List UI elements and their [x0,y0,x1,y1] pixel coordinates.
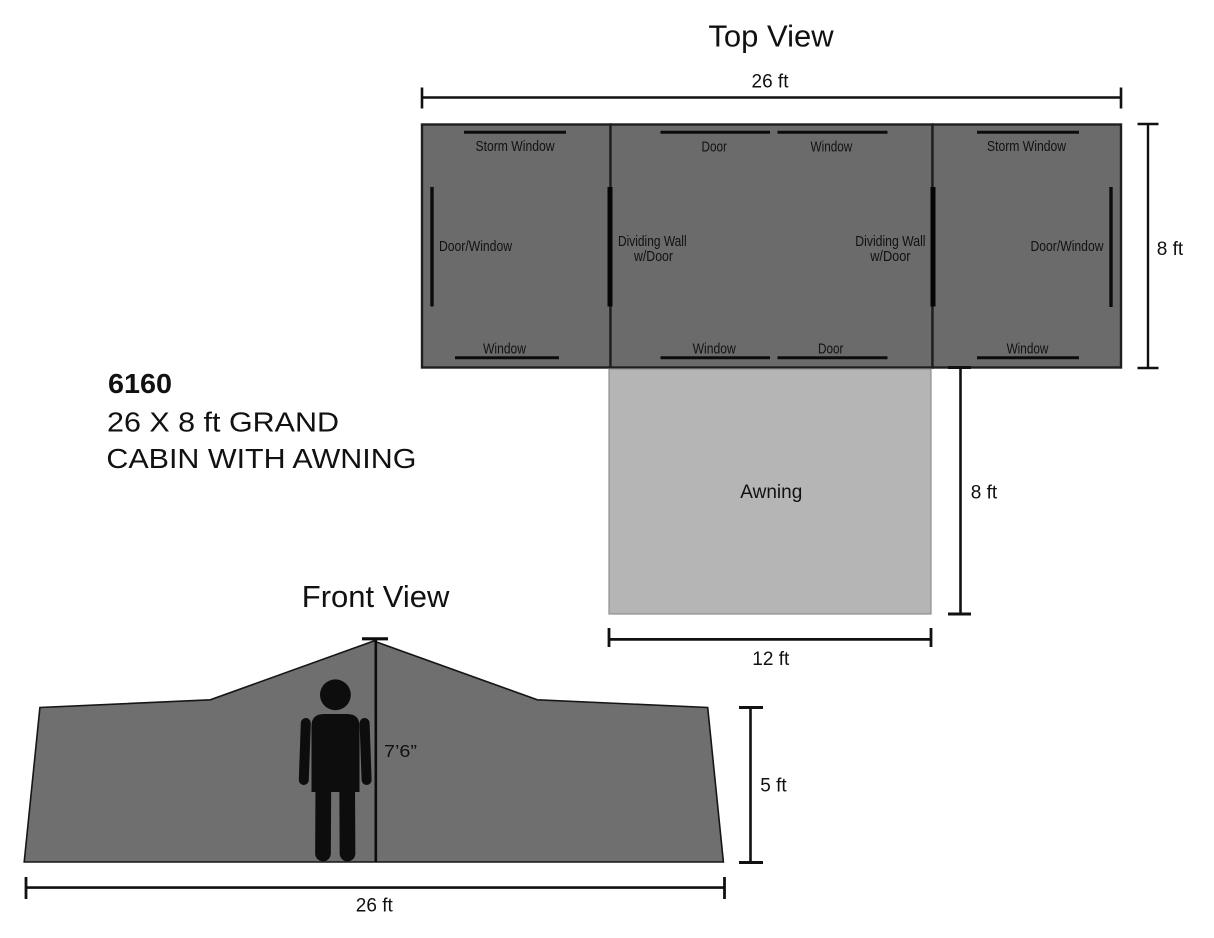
svg-text:6160: 6160 [108,368,172,399]
svg-text:Door/Window: Door/Window [439,239,512,255]
svg-text:12 ft: 12 ft [752,649,790,670]
svg-text:Dividing Wall: Dividing Wall [618,234,687,250]
svg-text:Window: Window [693,342,736,358]
svg-text:Door/Window: Door/Window [1031,239,1104,255]
svg-text:Window: Window [483,342,526,358]
svg-text:Window: Window [811,140,853,156]
svg-text:Front View: Front View [302,579,450,614]
svg-text:Storm Window: Storm Window [987,139,1066,155]
svg-text:w/Door: w/Door [633,249,673,265]
svg-text:Window: Window [1007,342,1049,358]
svg-text:26 ft: 26 ft [356,896,394,917]
svg-text:Door: Door [702,140,727,156]
svg-text:CABIN WITH AWNING: CABIN WITH AWNING [106,443,416,474]
svg-text:Storm Window: Storm Window [476,139,555,155]
svg-text:7’6”: 7’6” [384,741,417,761]
svg-text:w/Door: w/Door [869,249,910,265]
svg-text:Door: Door [818,342,843,358]
svg-text:8 ft: 8 ft [971,483,998,504]
svg-text:26 X 8 ft GRAND: 26 X 8 ft GRAND [107,407,339,438]
svg-text:26 ft: 26 ft [752,72,790,93]
svg-text:Top View: Top View [708,18,834,53]
svg-text:5 ft: 5 ft [760,776,787,797]
svg-text:Awning: Awning [740,482,802,503]
svg-text:Dividing Wall: Dividing Wall [855,234,925,250]
svg-text:8 ft: 8 ft [1157,239,1184,260]
